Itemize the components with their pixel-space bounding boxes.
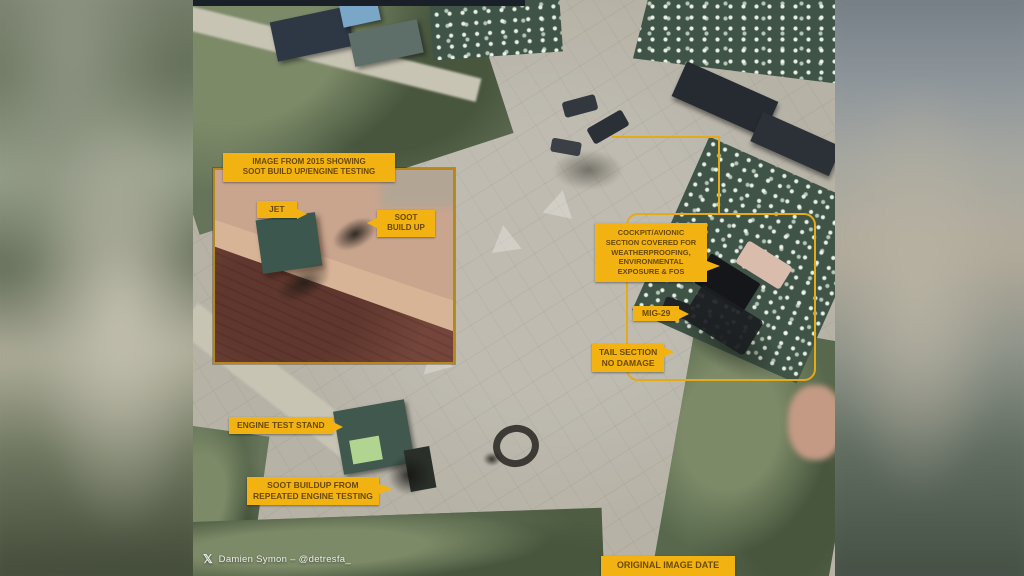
inset-2015-image bbox=[213, 168, 455, 364]
credit-watermark: 𝕏 Damien Symon – @detresfa_ bbox=[203, 552, 351, 566]
aircraft-shadow bbox=[553, 150, 623, 190]
label-jet: JET bbox=[257, 201, 297, 218]
label-cockpit-avionic: COCKPIT/AVIONIC SECTION COVERED FOR WEAT… bbox=[595, 223, 707, 282]
blurred-left-margin bbox=[0, 0, 193, 576]
dirt-patch bbox=[788, 385, 835, 460]
x-logo-icon: 𝕏 bbox=[203, 552, 213, 566]
blurred-right-margin bbox=[835, 0, 1024, 576]
label-soot-build-up: SOOT BUILD UP bbox=[377, 210, 435, 237]
satellite-scene: IMAGE FROM 2015 SHOWING SOOT BUILD UP/EN… bbox=[193, 0, 835, 576]
annotated-satellite-image: IMAGE FROM 2015 SHOWING SOOT BUILD UP/EN… bbox=[0, 0, 1024, 576]
blur-fill bbox=[0, 0, 193, 576]
label-mig-29: MIG-29 bbox=[633, 306, 679, 321]
credit-text: Damien Symon – @detresfa_ bbox=[219, 554, 351, 565]
soot-smudge bbox=[483, 452, 501, 466]
blur-fill bbox=[835, 0, 1024, 576]
cropped-header-strip bbox=[193, 0, 525, 6]
callout-leader-line bbox=[718, 136, 720, 215]
label-tail-section: TAIL SECTION NO DAMAGE bbox=[592, 344, 664, 372]
label-engine-test-stand: ENGINE TEST STAND bbox=[229, 417, 333, 434]
soot-smudge bbox=[388, 455, 430, 495]
tree-cover bbox=[429, 0, 563, 60]
apron-marking bbox=[488, 223, 521, 253]
callout-leader-line bbox=[612, 136, 720, 138]
label-original-image-date: ORIGINAL IMAGE DATE bbox=[601, 556, 735, 576]
label-soot-buildup-repeated: SOOT BUILDUP FROM REPEATED ENGINE TESTIN… bbox=[247, 477, 379, 505]
building-roof-patch bbox=[349, 436, 383, 465]
label-image-from-2015: IMAGE FROM 2015 SHOWING SOOT BUILD UP/EN… bbox=[223, 153, 395, 182]
